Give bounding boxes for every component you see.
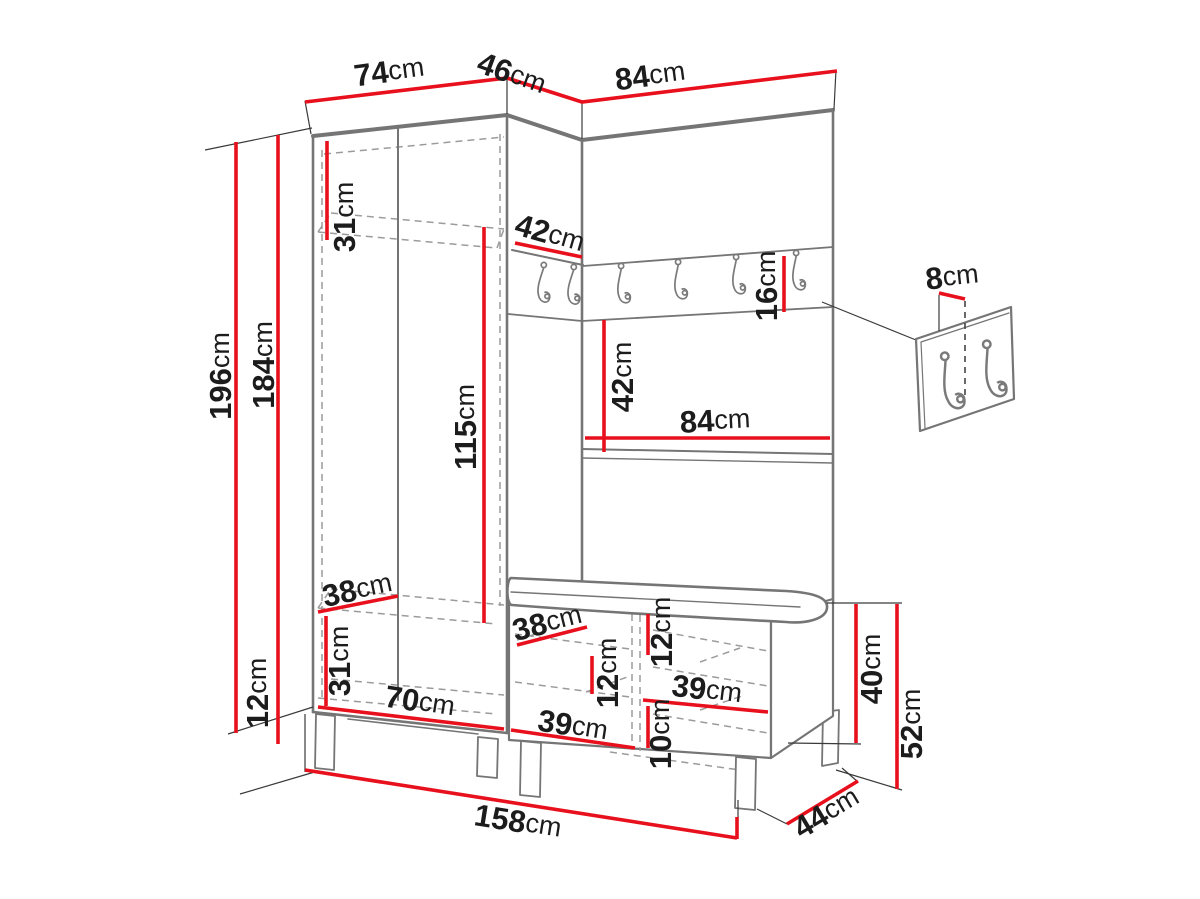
label-bench-body-height: 40cm [854,634,889,704]
panel-shelf-bottom [582,458,833,463]
ext-bench-body-bottom [788,743,861,744]
label-wardrobe-bottom-depth: 38cm [319,565,395,614]
detail-leader-line [822,302,916,340]
coat-hook-icon [537,262,552,302]
label-bench-total-depth: 44cm [787,779,865,845]
bench-front-left-leg [520,741,541,797]
coat-hook-icon [792,250,806,290]
label-panel-shelf-width: 84cm [679,401,751,440]
label-bench-bottom-gap: 10cm [643,699,678,769]
coat-hook-icon [567,264,582,304]
top-edge [313,110,833,140]
wardrobe-middle-leg [477,737,498,778]
ext-height-top [205,128,312,150]
label-hook-spacing: 8cm [924,256,981,296]
hook-detail [822,295,1014,431]
label-panel-opening-height: 42cm [605,342,640,412]
label-top-shelf-height: 31cm [327,182,362,252]
label-bench-total-height: 52cm [894,689,929,759]
label-wardrobe-top-width: 74cm [352,49,426,93]
coat-hook-icon [674,259,688,299]
diagram-canvas: 74cm 46cm 84cm 196cm 184cm 12cm 31cm 115… [0,0,1200,899]
label-rail-height: 16cm [749,251,784,321]
wardrobe-left-leg [315,714,335,770]
coat-hook-icon [617,263,631,303]
panel-shelf-front [582,449,833,454]
label-total-width: 158cm [472,797,564,845]
label-corner-top-width: 46cm [473,45,551,102]
label-bench-right-shelf-gap: 12cm [644,597,679,667]
ext-bench-depth-front [757,809,787,824]
dimension-diagram: 74cm 46cm 84cm 196cm 184cm 12cm 31cm 115… [0,0,1200,899]
wardrobe-top-back-edge [324,137,504,154]
label-hanging-space-height: 115cm [448,384,483,470]
label-bench-left-shelf-gap: 12cm [590,638,625,708]
label-leg-height: 12cm [240,658,275,728]
label-total-height: 196cm [203,332,238,420]
label-body-height: 184cm [246,321,281,409]
ext-top-right [834,70,836,109]
label-bottom-shelf-height: 31cm [322,626,357,696]
ext-bench-depth-back [842,768,858,782]
ext-floor [240,771,318,794]
coat-hook-icon [732,254,746,294]
